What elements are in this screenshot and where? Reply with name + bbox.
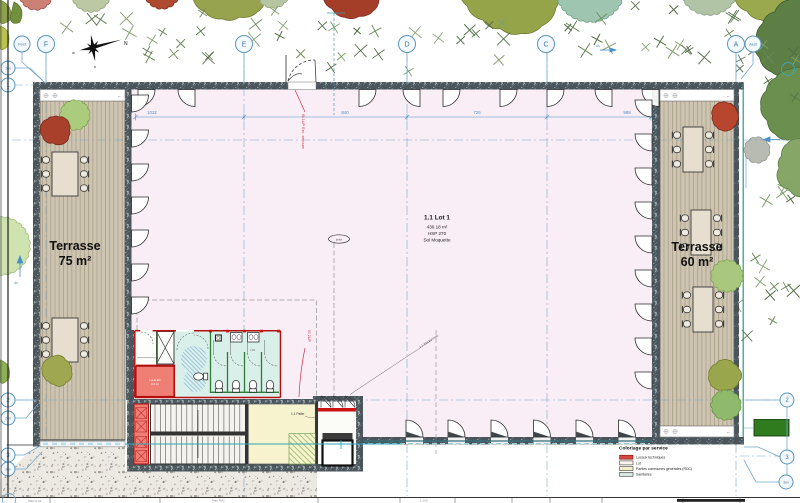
svg-text:D: D [404,42,409,49]
svg-text:Lot: Lot [636,461,641,465]
svg-text:Fest: Fest [18,41,27,46]
svg-text:Av: Av [596,44,600,48]
svg-text:1:100: 1:100 [420,499,428,503]
svg-text:Terrasse: Terrasse [49,239,100,253]
svg-text:3.2 m²: 3.2 m² [151,382,159,386]
svg-text:Sol Moquette: Sol Moquette [423,238,451,243]
svg-text:IS 2UP: IS 2UP [307,330,311,342]
svg-text:PRO A.01: PRO A.01 [28,499,42,503]
svg-text:s: s [94,64,96,69]
svg-text:840: 840 [341,110,349,115]
svg-text:↔: ↔ [726,430,730,435]
svg-text:Plan RdC: Plan RdC [212,499,226,503]
svg-text:1032: 1032 [147,110,157,115]
svg-text:60 m²: 60 m² [681,255,714,269]
svg-text:Coloriage par service: Coloriage par service [619,446,668,452]
svg-text:Bt 1UP Esc. secours: Bt 1UP Esc. secours [301,114,305,149]
svg-text:F: F [44,42,48,49]
svg-text:C: C [543,42,548,49]
svg-text:N: N [124,41,128,47]
svg-text:430.18 m²: 430.18 m² [427,225,448,230]
svg-text:w: w [72,50,75,55]
svg-text:↔: ↔ [117,94,121,99]
svg-text:HSP 270: HSP 270 [428,231,447,236]
svg-text:Parties communes générales (RD: Parties communes générales (RDC) [636,467,692,471]
svg-text:3ex: 3ex [783,480,789,484]
svg-text:Aest: Aest [749,42,758,46]
svg-text:↔: ↔ [726,94,730,99]
svg-text:726: 726 [473,110,481,115]
svg-text:988: 988 [623,110,631,115]
svg-text:1.1 Palier: 1.1 Palier [291,412,305,416]
svg-text:A: A [734,42,739,49]
svg-text:Terrasse: Terrasse [671,240,722,254]
svg-text:2.80: 2.80 [250,348,256,352]
svg-text:jardin: jardin [335,238,343,242]
svg-text:Sanitaires: Sanitaires [636,473,652,477]
svg-text:E: E [242,42,247,49]
svg-text:1.1 Lot 1: 1.1 Lot 1 [424,215,450,222]
svg-text:75 m²: 75 m² [59,254,92,268]
svg-text:Locaux techniques: Locaux techniques [636,456,665,460]
svg-text:dn: dn [14,281,18,285]
